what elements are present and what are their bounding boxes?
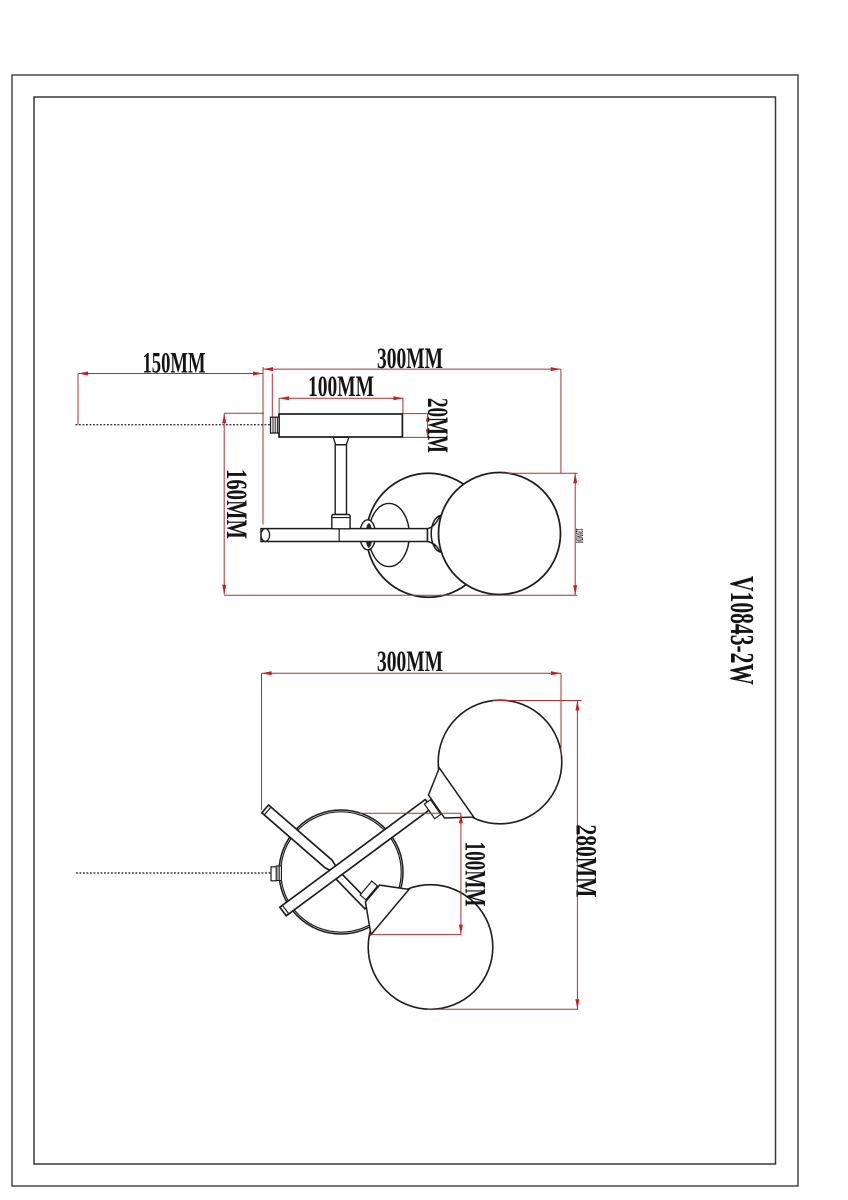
- svg-text:300MM: 300MM: [377, 645, 443, 678]
- svg-text:100MM: 100MM: [459, 842, 492, 907]
- svg-text:150MM: 150MM: [143, 347, 206, 380]
- svg-text:20MM: 20MM: [421, 398, 454, 453]
- svg-text:V10843-2W: V10843-2W: [723, 576, 760, 685]
- svg-text:280MM: 280MM: [570, 825, 603, 898]
- svg-text:160MM: 160MM: [220, 469, 253, 539]
- svg-text:300MM: 300MM: [377, 342, 443, 375]
- svg-text:120MM: 120MM: [573, 528, 584, 543]
- svg-text:100MM: 100MM: [308, 370, 374, 403]
